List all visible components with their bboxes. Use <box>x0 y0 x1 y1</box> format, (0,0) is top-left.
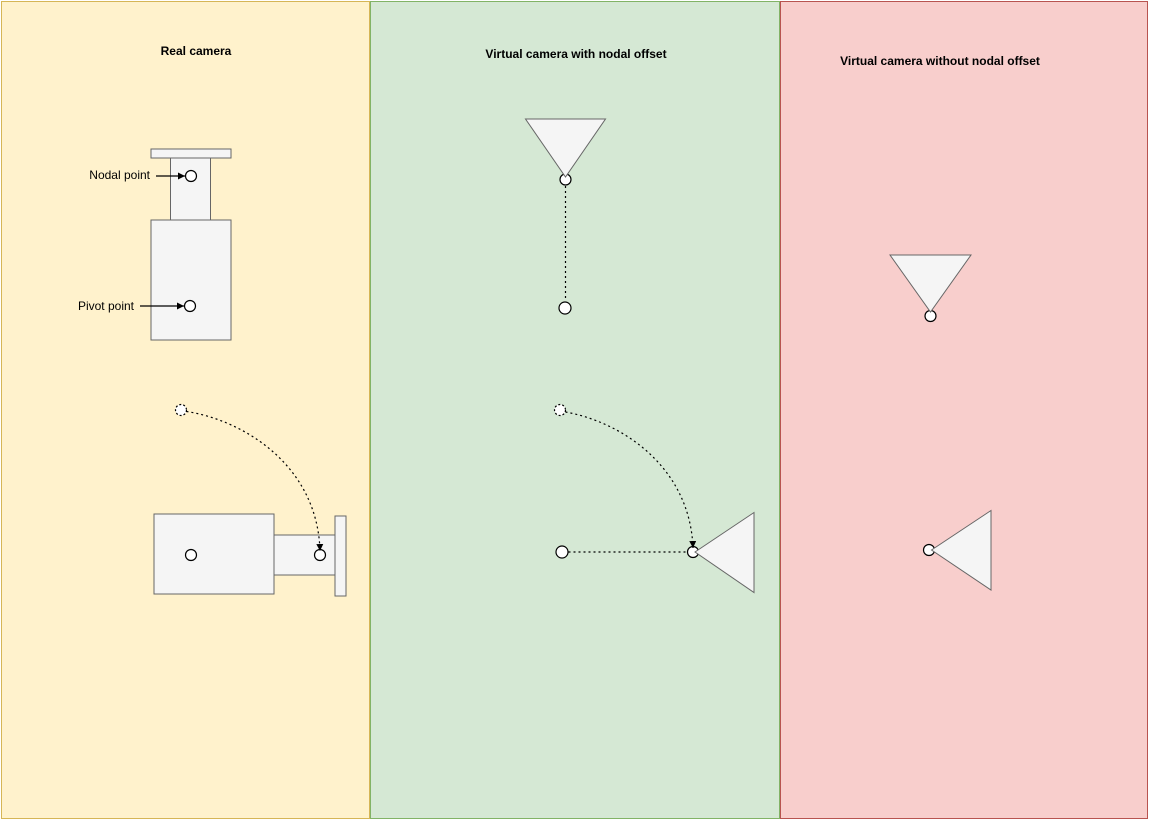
virtual-without-offset-title: Virtual camera without nodal offset <box>820 55 1060 68</box>
panel-real-camera <box>1 1 370 819</box>
pivot-point-label: Pivot point <box>42 300 134 313</box>
panel-virtual-camera-without-nodal-offset <box>780 1 1148 819</box>
panel-virtual-camera-with-nodal-offset <box>370 1 780 819</box>
nodal-point-label: Nodal point <box>58 169 150 182</box>
real-camera-title: Real camera <box>76 45 316 58</box>
diagram-canvas: Real camera Virtual camera with nodal of… <box>0 0 1151 821</box>
virtual-with-offset-title: Virtual camera with nodal offset <box>456 48 696 61</box>
